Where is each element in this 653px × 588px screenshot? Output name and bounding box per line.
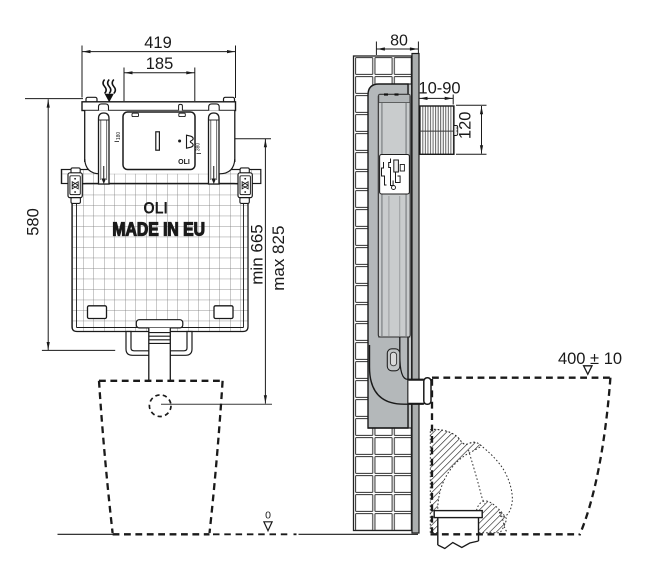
svg-text:OLI: OLI xyxy=(143,200,167,218)
svg-text:MADE IN EU: MADE IN EU xyxy=(112,218,205,240)
svg-text:OLI: OLI xyxy=(178,159,190,166)
svg-text:10-90: 10-90 xyxy=(418,80,460,98)
svg-text:419: 419 xyxy=(144,34,172,52)
svg-text:max 825: max 825 xyxy=(269,226,288,291)
svg-text:120: 120 xyxy=(456,112,474,140)
svg-text:580: 580 xyxy=(25,208,43,236)
svg-text:180: 180 xyxy=(116,132,122,141)
svg-text:185: 185 xyxy=(146,55,174,73)
svg-text:0: 0 xyxy=(265,510,271,522)
svg-text:80: 80 xyxy=(390,33,408,50)
svg-text:min 665: min 665 xyxy=(248,224,267,284)
svg-text:380: 380 xyxy=(195,143,201,152)
